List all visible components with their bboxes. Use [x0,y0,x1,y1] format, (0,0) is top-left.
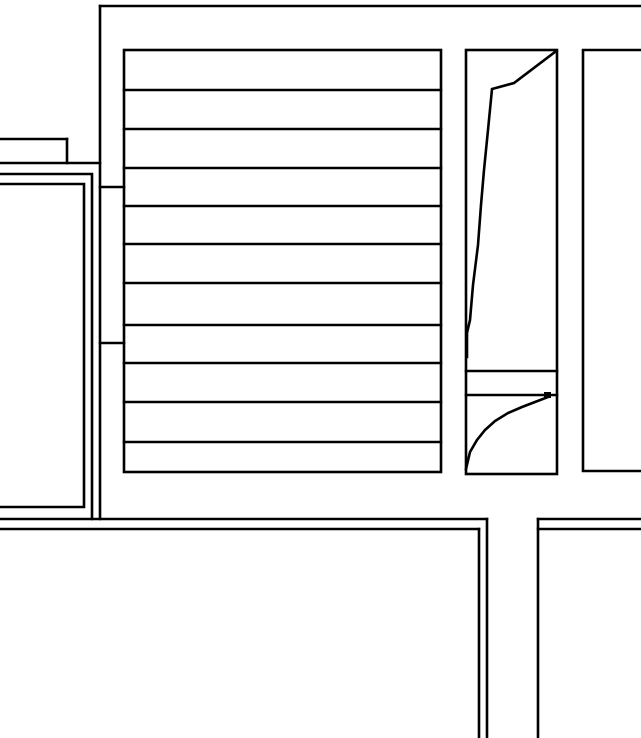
stair-outline [124,50,441,472]
left-room-wall-outer [0,174,92,519]
door-swing-endpoint [544,392,551,398]
door-swing-lower [466,397,548,469]
door-leaf-upper [467,52,555,357]
left-room-wall-inner [0,184,84,507]
floorplan-drawing [0,0,641,738]
floorplan-canvas[interactable] [0,0,641,738]
right-room-wall [583,50,641,471]
